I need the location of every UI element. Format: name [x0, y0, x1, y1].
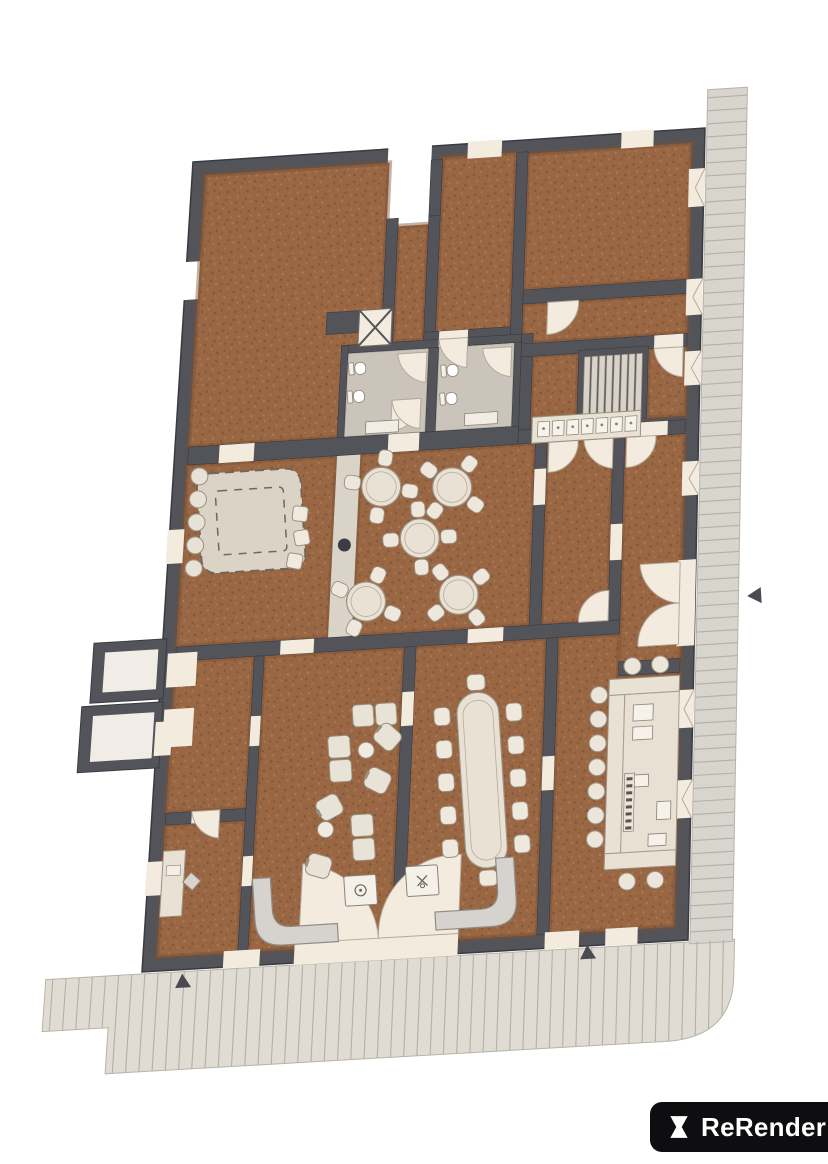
toilet-icon: [354, 362, 366, 375]
bar-equipment-labels: [623, 773, 635, 832]
entrance-arrow-icon: [747, 587, 762, 604]
dining-chair: [507, 736, 524, 755]
stair-tread: [583, 357, 591, 416]
dining-chair: [505, 703, 522, 722]
bar-stool: [590, 711, 607, 728]
dining-chair: [436, 740, 453, 759]
room-floor-room-top-right: [523, 143, 691, 290]
stool: [187, 537, 204, 554]
dining-chair: [514, 834, 531, 853]
stool: [188, 514, 205, 531]
dining-chair: [509, 768, 526, 787]
bar-stool: [588, 783, 605, 800]
stool: [293, 529, 310, 546]
sink-counter: [464, 412, 498, 426]
dining-chair: [438, 773, 455, 792]
stool: [292, 506, 309, 523]
bar-stool: [588, 759, 605, 776]
stool: [191, 468, 208, 485]
room-floor-corridor-v: [393, 224, 429, 342]
toilet-icon: [447, 364, 459, 377]
column: [338, 538, 351, 551]
stool: [286, 552, 303, 569]
rerender-logo-text: ReRender: [701, 1112, 826, 1143]
bar-stool: [618, 873, 635, 890]
floor-plan-page: ReRender: [0, 0, 828, 1164]
rerender-logo-icon: [666, 1114, 692, 1140]
stair-tread: [598, 356, 606, 415]
bar-equipment: [633, 704, 653, 721]
cafe-chair: [410, 501, 425, 518]
cafe-chair: [377, 449, 393, 467]
toilet-tank-icon: [347, 391, 353, 403]
stool: [189, 491, 206, 508]
bar-stool: [589, 735, 606, 752]
floor-plan: [0, 0, 828, 1164]
cafe-chair: [369, 507, 385, 525]
sofa-seat: [375, 702, 397, 725]
side-table: [317, 821, 334, 838]
stool: [185, 560, 202, 577]
cafe-chair: [414, 559, 429, 576]
dining-chair: [440, 806, 457, 825]
desk: [160, 850, 186, 917]
cafe-chair: [401, 483, 419, 499]
bar-stool: [591, 687, 608, 704]
stair-tread: [628, 354, 636, 413]
rerender-logo-badge[interactable]: ReRender: [650, 1102, 828, 1152]
dining-chair: [512, 801, 529, 820]
toilet-tank-icon: [441, 365, 447, 377]
rug-lounge: [185, 468, 310, 577]
sofa-seat: [327, 735, 350, 758]
desk-monitor: [166, 865, 181, 876]
sofa-seat: [352, 838, 375, 861]
side-table: [358, 742, 375, 759]
toilet-icon: [446, 392, 458, 405]
bar-equipment: [633, 726, 653, 740]
cafe-chair: [440, 529, 457, 544]
toilet-icon: [353, 390, 365, 403]
bar-equipment: [648, 833, 666, 846]
toilet-tank-icon: [440, 393, 446, 405]
stair-tread: [620, 354, 628, 413]
toilet-tank-icon: [348, 363, 354, 375]
dining-chair: [466, 674, 485, 691]
dining-chair: [479, 869, 498, 886]
sink-counter: [365, 420, 399, 434]
cafe-chair: [382, 533, 399, 548]
dining-chair: [442, 839, 459, 858]
sofa-seat: [352, 704, 374, 727]
bar-stool: [587, 807, 604, 824]
cafe-chair: [344, 474, 362, 490]
dining-chair: [433, 707, 450, 726]
bar-stool: [624, 658, 641, 675]
bar-equipment: [657, 801, 671, 820]
sofa-seat: [329, 759, 352, 782]
sofa-seat: [351, 814, 374, 837]
room-floor-room-top-center: [435, 153, 517, 334]
bar-stool: [647, 871, 664, 888]
stair-tread: [635, 353, 643, 412]
stair-tread: [605, 355, 613, 414]
bar-stool: [652, 656, 669, 673]
stair-tread: [613, 355, 621, 414]
bar-stool: [586, 831, 603, 848]
